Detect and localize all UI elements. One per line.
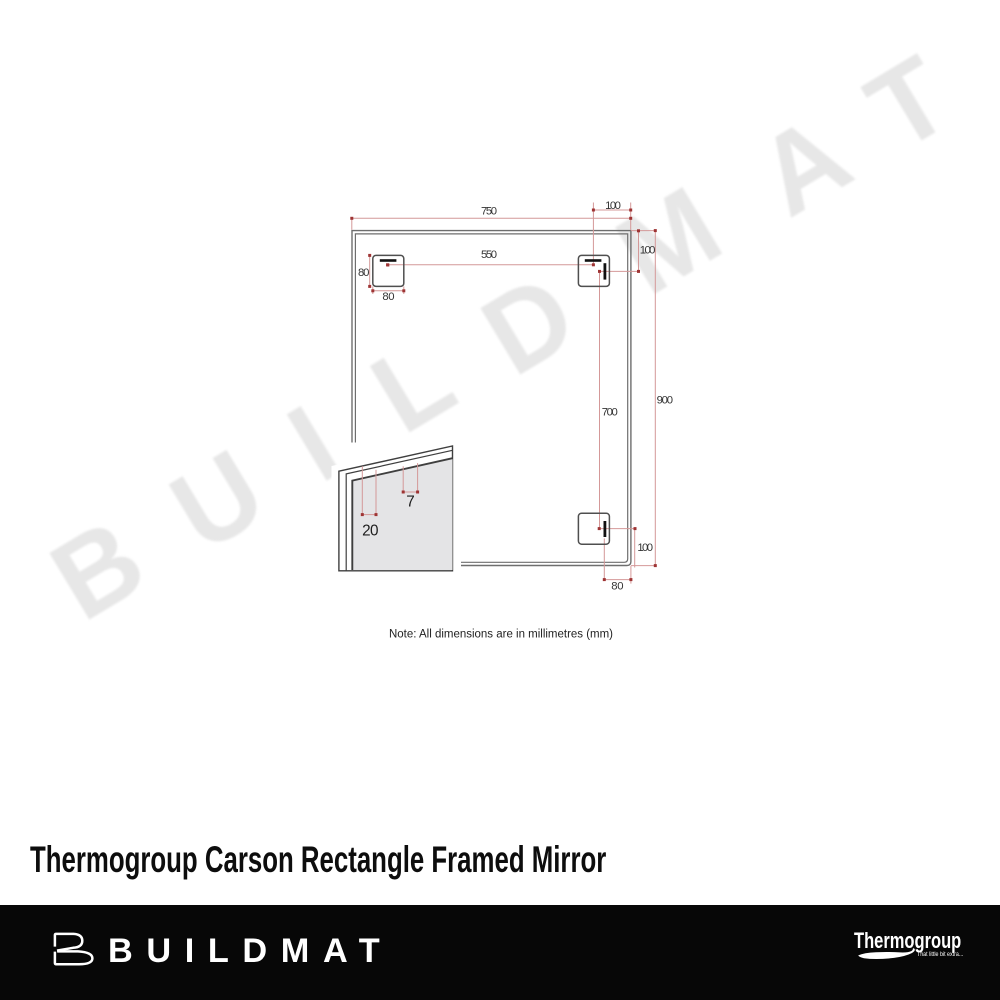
svg-text:550: 550 (481, 249, 497, 261)
svg-text:7: 7 (406, 493, 415, 510)
svg-text:80: 80 (611, 581, 623, 593)
svg-text:Note: All dimensions are in mi: Note: All dimensions are in millimetres … (389, 629, 613, 641)
svg-text:700: 700 (602, 406, 618, 418)
svg-text:900: 900 (657, 394, 673, 406)
svg-text:100: 100 (637, 542, 653, 554)
svg-text:100: 100 (605, 200, 621, 212)
svg-text:80: 80 (382, 291, 394, 303)
svg-text:20: 20 (362, 523, 378, 540)
svg-text:100: 100 (640, 244, 656, 256)
svg-text:750: 750 (481, 205, 497, 217)
svg-text:80: 80 (358, 267, 369, 279)
